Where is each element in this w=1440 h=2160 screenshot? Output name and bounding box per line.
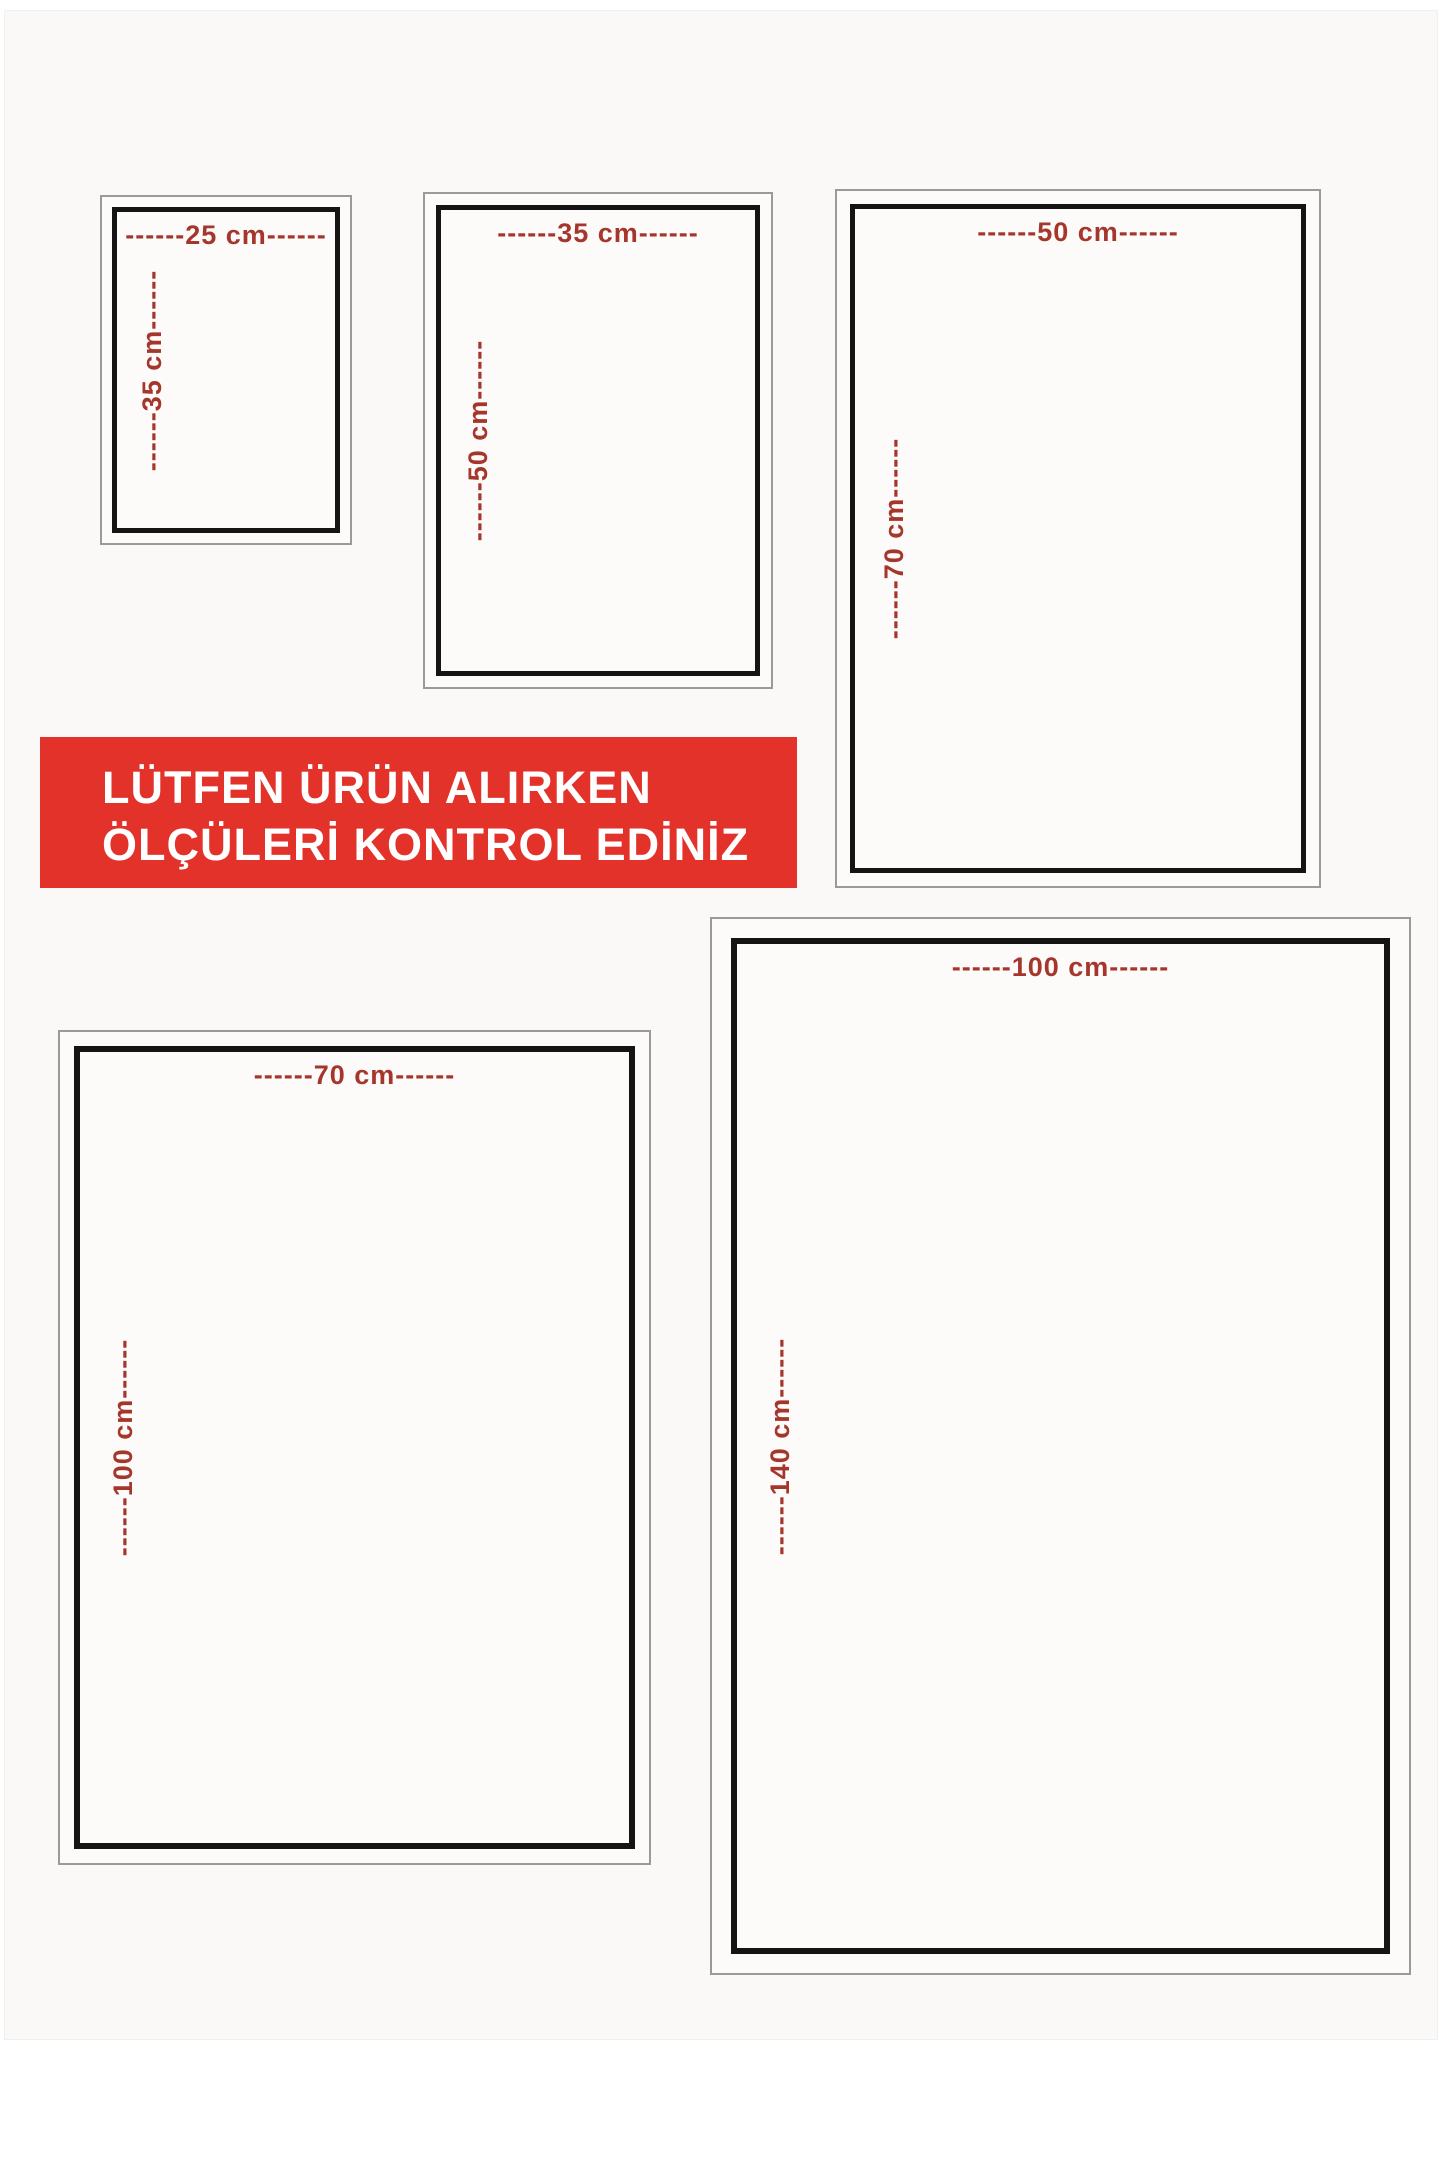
size-box-50x70: ------50 cm------ ------70 cm------ <box>835 189 1321 888</box>
warning-banner: LÜTFEN ÜRÜN ALIRKEN ÖLÇÜLERİ KONTROL EDİ… <box>40 737 797 888</box>
height-dimension-label: ------70 cm------ <box>880 438 911 639</box>
size-box-25x35: ------25 cm------ ------35 cm------ <box>100 195 352 545</box>
height-dimension-label-wrap: ------35 cm------ <box>133 212 173 528</box>
height-dimension-label: ------35 cm------ <box>138 269 169 470</box>
height-dimension-label-wrap: ------50 cm------ <box>459 210 499 671</box>
size-box-70x100-frame: ------70 cm------ ------100 cm------ <box>74 1046 635 1849</box>
size-box-25x35-frame: ------25 cm------ ------35 cm------ <box>112 207 340 533</box>
size-chart-image: ------25 cm------ ------35 cm------ ----… <box>0 0 1440 2160</box>
size-box-35x50-frame: ------35 cm------ ------50 cm------ <box>436 205 760 676</box>
height-dimension-label-wrap: ------140 cm------ <box>761 944 801 1948</box>
height-dimension-label-wrap: ------100 cm------ <box>104 1052 144 1843</box>
warning-banner-line1: LÜTFEN ÜRÜN ALIRKEN <box>102 759 787 816</box>
size-box-35x50: ------35 cm------ ------50 cm------ <box>423 192 773 689</box>
width-dimension-label: ------70 cm------ <box>80 1060 629 1091</box>
width-dimension-label: ------50 cm------ <box>855 217 1301 248</box>
warning-banner-line2: ÖLÇÜLERİ KONTROL EDİNİZ <box>102 816 787 873</box>
width-dimension-label: ------100 cm------ <box>737 952 1384 983</box>
size-box-100x140: ------100 cm------ ------140 cm------ <box>710 917 1411 1975</box>
height-dimension-label: ------100 cm------ <box>109 1339 140 1556</box>
size-box-50x70-frame: ------50 cm------ ------70 cm------ <box>850 204 1306 873</box>
height-dimension-label: ------50 cm------ <box>464 340 495 541</box>
height-dimension-label: ------140 cm------ <box>766 1337 797 1554</box>
size-box-70x100: ------70 cm------ ------100 cm------ <box>58 1030 651 1865</box>
height-dimension-label-wrap: ------70 cm------ <box>875 209 915 868</box>
size-box-100x140-frame: ------100 cm------ ------140 cm------ <box>731 938 1390 1954</box>
